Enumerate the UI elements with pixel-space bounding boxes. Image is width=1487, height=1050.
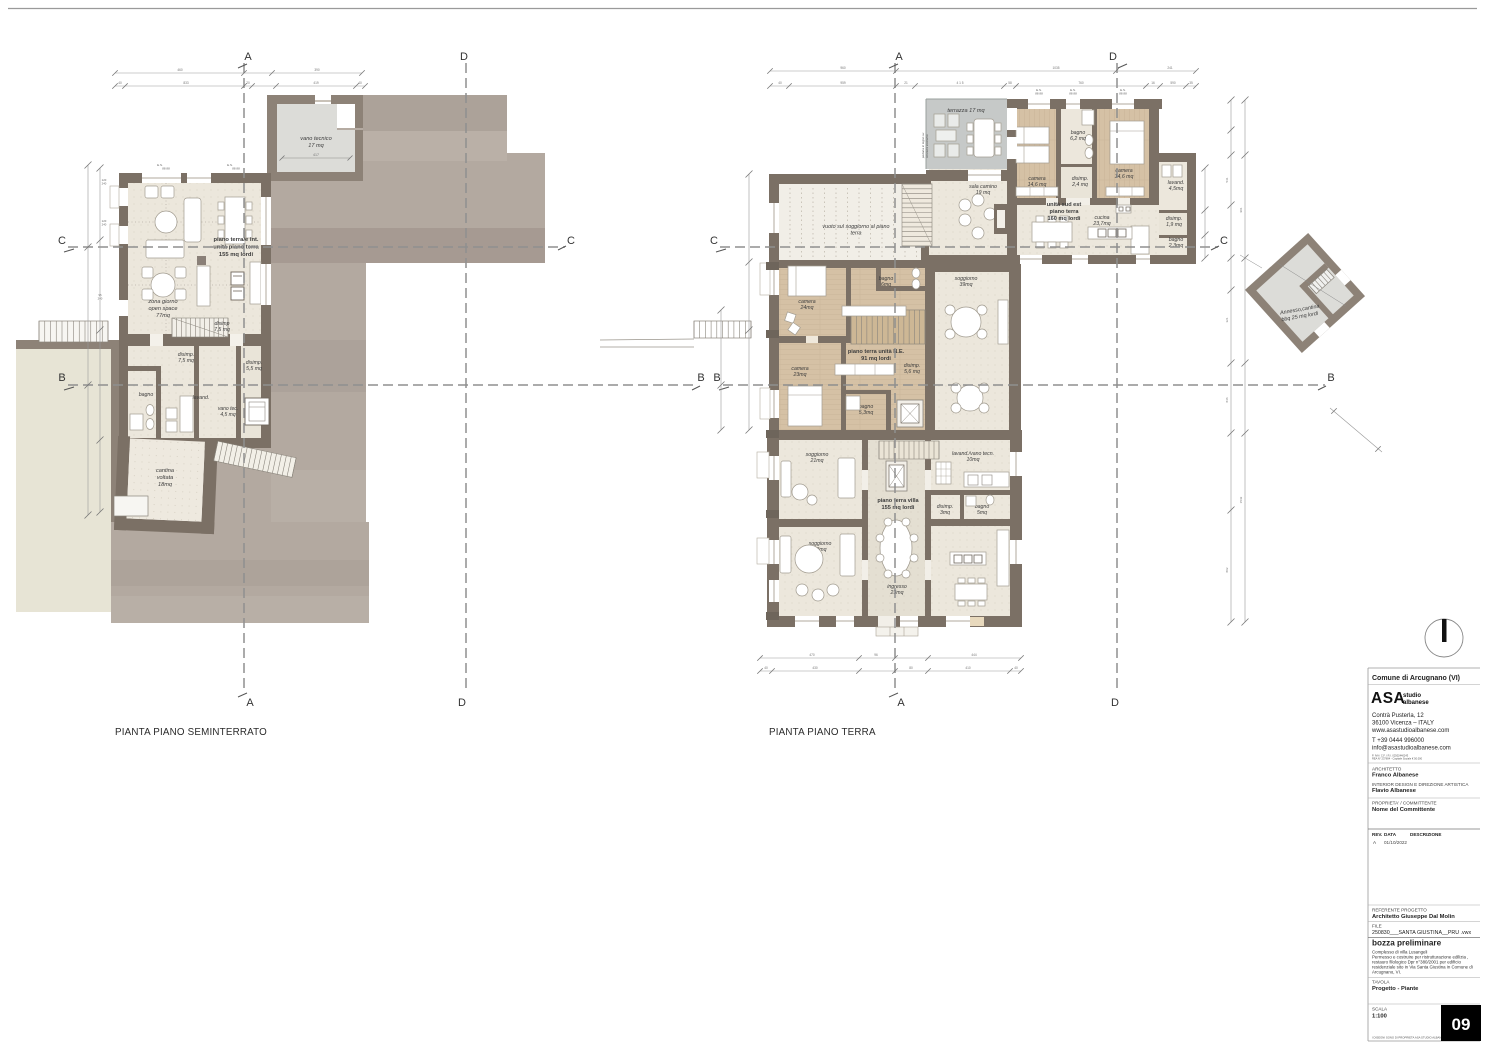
- svg-text:321: 321: [1225, 317, 1229, 322]
- svg-text:88 88: 88 88: [162, 167, 170, 171]
- svg-text:studio: studio: [1403, 693, 1421, 699]
- svg-text:B: B: [713, 372, 720, 384]
- svg-text:ASA: ASA: [1371, 690, 1405, 707]
- svg-text:1:100: 1:100: [1372, 1014, 1387, 1020]
- svg-text:terrazza 17 mq: terrazza 17 mq: [947, 108, 985, 114]
- svg-text:REFERENTE PROGETTO: REFERENTE PROGETTO: [1372, 908, 1427, 913]
- svg-text:4 1 5: 4 1 5: [956, 81, 963, 85]
- svg-text:Contrà Pusterla, 12: Contrà Pusterla, 12: [1372, 713, 1424, 719]
- svg-text:5,6 mq: 5,6 mq: [904, 369, 920, 375]
- svg-text:24mq: 24mq: [800, 305, 814, 311]
- svg-text:21mq: 21mq: [810, 458, 824, 464]
- svg-text:T +39 0444 996000: T +39 0444 996000: [1372, 738, 1425, 744]
- svg-text:C: C: [710, 235, 718, 247]
- svg-text:bozza preliminare: bozza preliminare: [1372, 939, 1442, 948]
- svg-text:INTERIOR DESIGN E DIREZIONE AR: INTERIOR DESIGN E DIREZIONE ARTISTICA: [1372, 782, 1469, 787]
- svg-text:piano terra: piano terra: [1050, 209, 1080, 215]
- svg-text:7,5 mq: 7,5 mq: [178, 358, 194, 364]
- svg-text:Arcugnano, VI.: Arcugnano, VI.: [1372, 970, 1401, 975]
- svg-text:1542: 1542: [1239, 496, 1243, 503]
- svg-text:40: 40: [1014, 666, 1018, 670]
- svg-text:410: 410: [965, 666, 971, 670]
- svg-text:cantina: cantina: [156, 468, 174, 474]
- svg-text:B: B: [697, 372, 704, 384]
- svg-text:D: D: [1109, 51, 1117, 63]
- svg-text:80: 80: [909, 666, 913, 670]
- svg-text:240: 240: [102, 223, 107, 227]
- svg-text:FILE: FILE: [1372, 924, 1382, 929]
- svg-text:zona giorno: zona giorno: [147, 299, 177, 305]
- svg-text:D: D: [458, 697, 466, 709]
- svg-text:833: 833: [183, 81, 189, 85]
- svg-text:www.asastudioalbanese.com: www.asastudioalbanese.com: [1371, 728, 1449, 734]
- svg-text:430: 430: [812, 666, 818, 670]
- svg-text:unità sud est: unità sud est: [1047, 202, 1082, 208]
- svg-text:D: D: [1111, 697, 1119, 709]
- svg-text:960: 960: [840, 66, 846, 70]
- svg-text:5mq: 5mq: [977, 510, 987, 516]
- svg-text:A: A: [897, 697, 905, 709]
- svg-text:1035: 1035: [1052, 66, 1059, 70]
- svg-text:B: B: [1327, 372, 1334, 384]
- svg-text:01/10/2022: 01/10/2022: [1384, 840, 1407, 845]
- svg-text:2,3mq: 2,3mq: [1168, 243, 1184, 249]
- svg-text:REV.: REV.: [1372, 832, 1382, 837]
- svg-text:444: 444: [971, 653, 977, 657]
- svg-text:88 88: 88 88: [1119, 92, 1127, 96]
- svg-text:590: 590: [1170, 81, 1176, 85]
- svg-text:18mq: 18mq: [158, 482, 173, 488]
- svg-text:40: 40: [764, 666, 768, 670]
- svg-text:C: C: [58, 235, 66, 247]
- svg-text:piano terra villa: piano terra villa: [877, 498, 919, 504]
- svg-text:REA N° 237694 - Capitale Socia: REA N° 237694 - Capitale Sociale € 50.00…: [1372, 757, 1423, 761]
- svg-text:241: 241: [1167, 66, 1173, 70]
- svg-text:D: D: [460, 51, 468, 63]
- svg-text:vuoto sul soggiorno al piano: vuoto sul soggiorno al piano: [822, 224, 889, 230]
- svg-text:Architetto Giuseppe Dal Molin: Architetto Giuseppe Dal Molin: [1372, 914, 1455, 920]
- svg-text:PIANTA PIANO TERRA: PIANTA PIANO TERRA: [769, 727, 876, 738]
- svg-text:88 88: 88 88: [1069, 92, 1077, 96]
- svg-text:160 mq lordi: 160 mq lordi: [1048, 216, 1081, 222]
- svg-text:959: 959: [840, 81, 846, 85]
- svg-text:info@asastudioalbanese.com: info@asastudioalbanese.com: [1372, 746, 1451, 752]
- svg-text:419: 419: [313, 81, 319, 85]
- svg-text:240: 240: [102, 182, 107, 186]
- svg-text:4,5mq: 4,5mq: [1169, 186, 1184, 192]
- svg-text:23mq: 23mq: [890, 590, 904, 596]
- svg-text:91 mq lordi: 91 mq lordi: [861, 356, 891, 362]
- svg-text:I DISEGNI SONO DI PROPRIETA AS: I DISEGNI SONO DI PROPRIETA ASA STUDIO A…: [1372, 1036, 1447, 1040]
- svg-text:10mq: 10mq: [967, 457, 980, 463]
- svg-text:C: C: [567, 235, 575, 247]
- svg-text:09: 09: [1452, 1015, 1471, 1034]
- svg-text:155 mq lordi: 155 mq lordi: [219, 252, 254, 258]
- svg-text:760: 760: [1078, 81, 1084, 85]
- svg-text:terra: terra: [850, 231, 861, 237]
- svg-text:88 88: 88 88: [1035, 92, 1043, 96]
- svg-text:5,3mq: 5,3mq: [859, 410, 874, 416]
- svg-text:1,9 mq: 1,9 mq: [1166, 222, 1182, 228]
- svg-text:802: 802: [1225, 567, 1229, 572]
- svg-text:35: 35: [1189, 81, 1193, 85]
- svg-text:A: A: [246, 697, 254, 709]
- svg-text:846: 846: [1225, 397, 1229, 402]
- svg-text:C: C: [1220, 235, 1228, 247]
- svg-text:19 mq: 19 mq: [976, 190, 991, 196]
- svg-text:417: 417: [313, 153, 319, 157]
- svg-text:DESCRIZIONE: DESCRIZIONE: [1410, 832, 1441, 837]
- svg-text:96: 96: [874, 653, 878, 657]
- svg-text:541: 541: [1225, 177, 1229, 182]
- svg-text:40: 40: [118, 81, 122, 85]
- svg-text:14,6 mq: 14,6 mq: [1028, 182, 1047, 188]
- svg-text:7,5 mq: 7,5 mq: [214, 327, 230, 333]
- svg-text:470: 470: [809, 653, 815, 657]
- svg-text:Comune di Arcugnano (VI): Comune di Arcugnano (VI): [1372, 675, 1460, 682]
- svg-text:A: A: [244, 51, 252, 63]
- svg-text:901: 901: [1239, 207, 1243, 212]
- svg-text:ARCHITETTO: ARCHITETTO: [1372, 767, 1402, 772]
- svg-text:88 88: 88 88: [232, 167, 240, 171]
- svg-text:77mq: 77mq: [156, 313, 171, 319]
- svg-text:DATA: DATA: [1384, 832, 1397, 837]
- svg-text:Nome del Committente: Nome del Committente: [1372, 807, 1436, 813]
- svg-text:Flavio Albanese: Flavio Albanese: [1372, 788, 1417, 794]
- svg-text:23,7mq: 23,7mq: [1092, 221, 1110, 227]
- svg-text:TAVOLA: TAVOLA: [1372, 980, 1390, 985]
- svg-text:155 mq lordi: 155 mq lordi: [882, 505, 915, 511]
- svg-text:PROPRIETA' / COMMITTENTE: PROPRIETA' / COMMITTENTE: [1372, 801, 1437, 806]
- svg-text:bagno: bagno: [139, 392, 154, 398]
- svg-text:SCALA: SCALA: [1372, 1007, 1388, 1012]
- svg-text:460: 460: [177, 68, 183, 72]
- svg-text:16: 16: [1151, 81, 1155, 85]
- svg-text:20: 20: [246, 81, 250, 85]
- svg-text:PIANTA PIANO SEMINTERRATO: PIANTA PIANO SEMINTERRATO: [115, 727, 267, 738]
- svg-text:6,2 mq: 6,2 mq: [1070, 136, 1086, 142]
- svg-text:23mq: 23mq: [793, 372, 807, 378]
- svg-text:3mq: 3mq: [940, 510, 950, 516]
- svg-text:vano tecnico: vano tecnico: [300, 136, 331, 142]
- svg-text:21: 21: [904, 81, 908, 85]
- svg-text:Progetto - Piante: Progetto - Piante: [1372, 986, 1419, 992]
- svg-text:lavand.: lavand.: [193, 395, 210, 401]
- svg-text:36100 Vicenza – ITALY: 36100 Vicenza – ITALY: [1372, 721, 1434, 727]
- svg-text:390: 390: [314, 68, 320, 72]
- svg-text:39mq: 39mq: [960, 282, 973, 288]
- svg-text:17 mq: 17 mq: [308, 143, 324, 149]
- svg-text:B: B: [58, 372, 65, 384]
- svg-text:piano terra/e int.: piano terra/e int.: [213, 237, 258, 243]
- svg-text:40: 40: [778, 81, 782, 85]
- svg-text:5,5 mq: 5,5 mq: [246, 366, 262, 372]
- svg-text:piano terra unità N.E.: piano terra unità N.E.: [848, 349, 905, 355]
- svg-text:2,4 mq: 2,4 mq: [1071, 182, 1088, 188]
- svg-text:250830___SANTA GIUSTINA__PRU .: 250830___SANTA GIUSTINA__PRU .vwx: [1372, 930, 1471, 936]
- svg-text:4,5 mq: 4,5 mq: [220, 412, 236, 418]
- svg-text:6mq: 6mq: [881, 282, 891, 288]
- svg-text:voltata: voltata: [157, 475, 173, 481]
- svg-text:40: 40: [358, 81, 362, 85]
- svg-text:open space: open space: [149, 306, 178, 312]
- svg-text:58: 58: [1008, 81, 1012, 85]
- svg-text:Franco Albanese: Franco Albanese: [1372, 773, 1419, 779]
- svg-text:albanese: albanese: [1403, 700, 1429, 706]
- svg-text:A: A: [895, 51, 903, 63]
